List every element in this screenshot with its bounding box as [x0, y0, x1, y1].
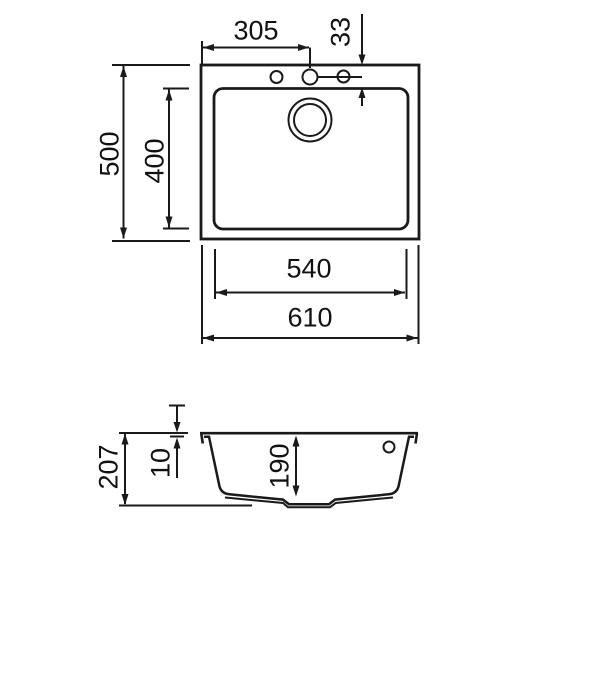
sink-dimension-drawing: 305 33 500 400 540 610 207 10 190: [0, 0, 600, 689]
rim-left-lip: [201, 433, 203, 443]
bowl-outline: [214, 89, 408, 230]
dim-label-rim-thickness: 10: [148, 448, 175, 478]
dim-label-bowl-depth: 190: [267, 443, 294, 488]
dim-label-overall-height: 207: [96, 444, 123, 489]
drain-inner-circle: [294, 104, 326, 136]
dim-label-bowl-inner-depth: 400: [142, 138, 169, 183]
drawing-lines: [0, 0, 600, 689]
dim-label-overall-depth: 500: [97, 131, 124, 176]
dim-label-tap-offset-y: 33: [328, 17, 355, 47]
dim-label-overall-width: 610: [287, 305, 332, 332]
tap-hole-left: [271, 71, 283, 83]
bowl-interior-profile: [204, 437, 414, 504]
overflow-hole: [384, 442, 395, 453]
dim-label-tap-offset-x: 305: [233, 18, 278, 45]
dim-label-bowl-inner-width: 540: [286, 256, 331, 283]
sink-outer-outline: [201, 65, 419, 239]
rim-right-lip: [416, 433, 418, 443]
tap-hole-center: [303, 70, 318, 85]
